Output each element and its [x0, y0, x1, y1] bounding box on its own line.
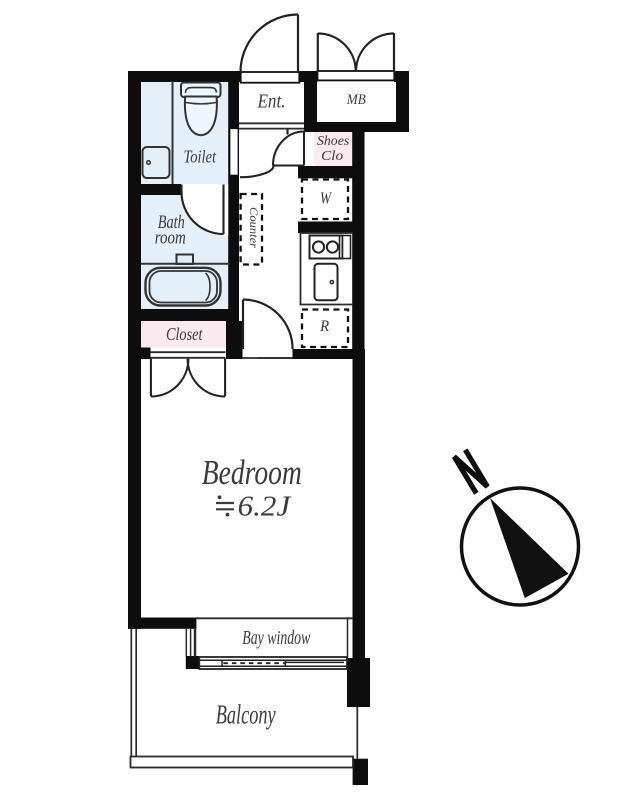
- svg-text:MB: MB: [346, 92, 366, 108]
- svg-text:Closet: Closet: [166, 324, 203, 344]
- svg-text:Shoes: Shoes: [317, 133, 349, 148]
- svg-text:Toilet: Toilet: [184, 146, 217, 166]
- svg-text:room: room: [155, 228, 186, 249]
- svg-text:Counter: Counter: [247, 207, 261, 248]
- svg-text:6.2J: 6.2J: [238, 490, 292, 522]
- svg-text:R: R: [319, 318, 329, 335]
- svg-text:Ent.: Ent.: [257, 91, 286, 113]
- svg-text:Clo: Clo: [321, 148, 343, 163]
- svg-text:Bay window: Bay window: [242, 627, 310, 649]
- svg-text:Balcony: Balcony: [216, 700, 276, 730]
- svg-text:W: W: [320, 188, 332, 207]
- svg-text:Bedroom: Bedroom: [202, 453, 302, 492]
